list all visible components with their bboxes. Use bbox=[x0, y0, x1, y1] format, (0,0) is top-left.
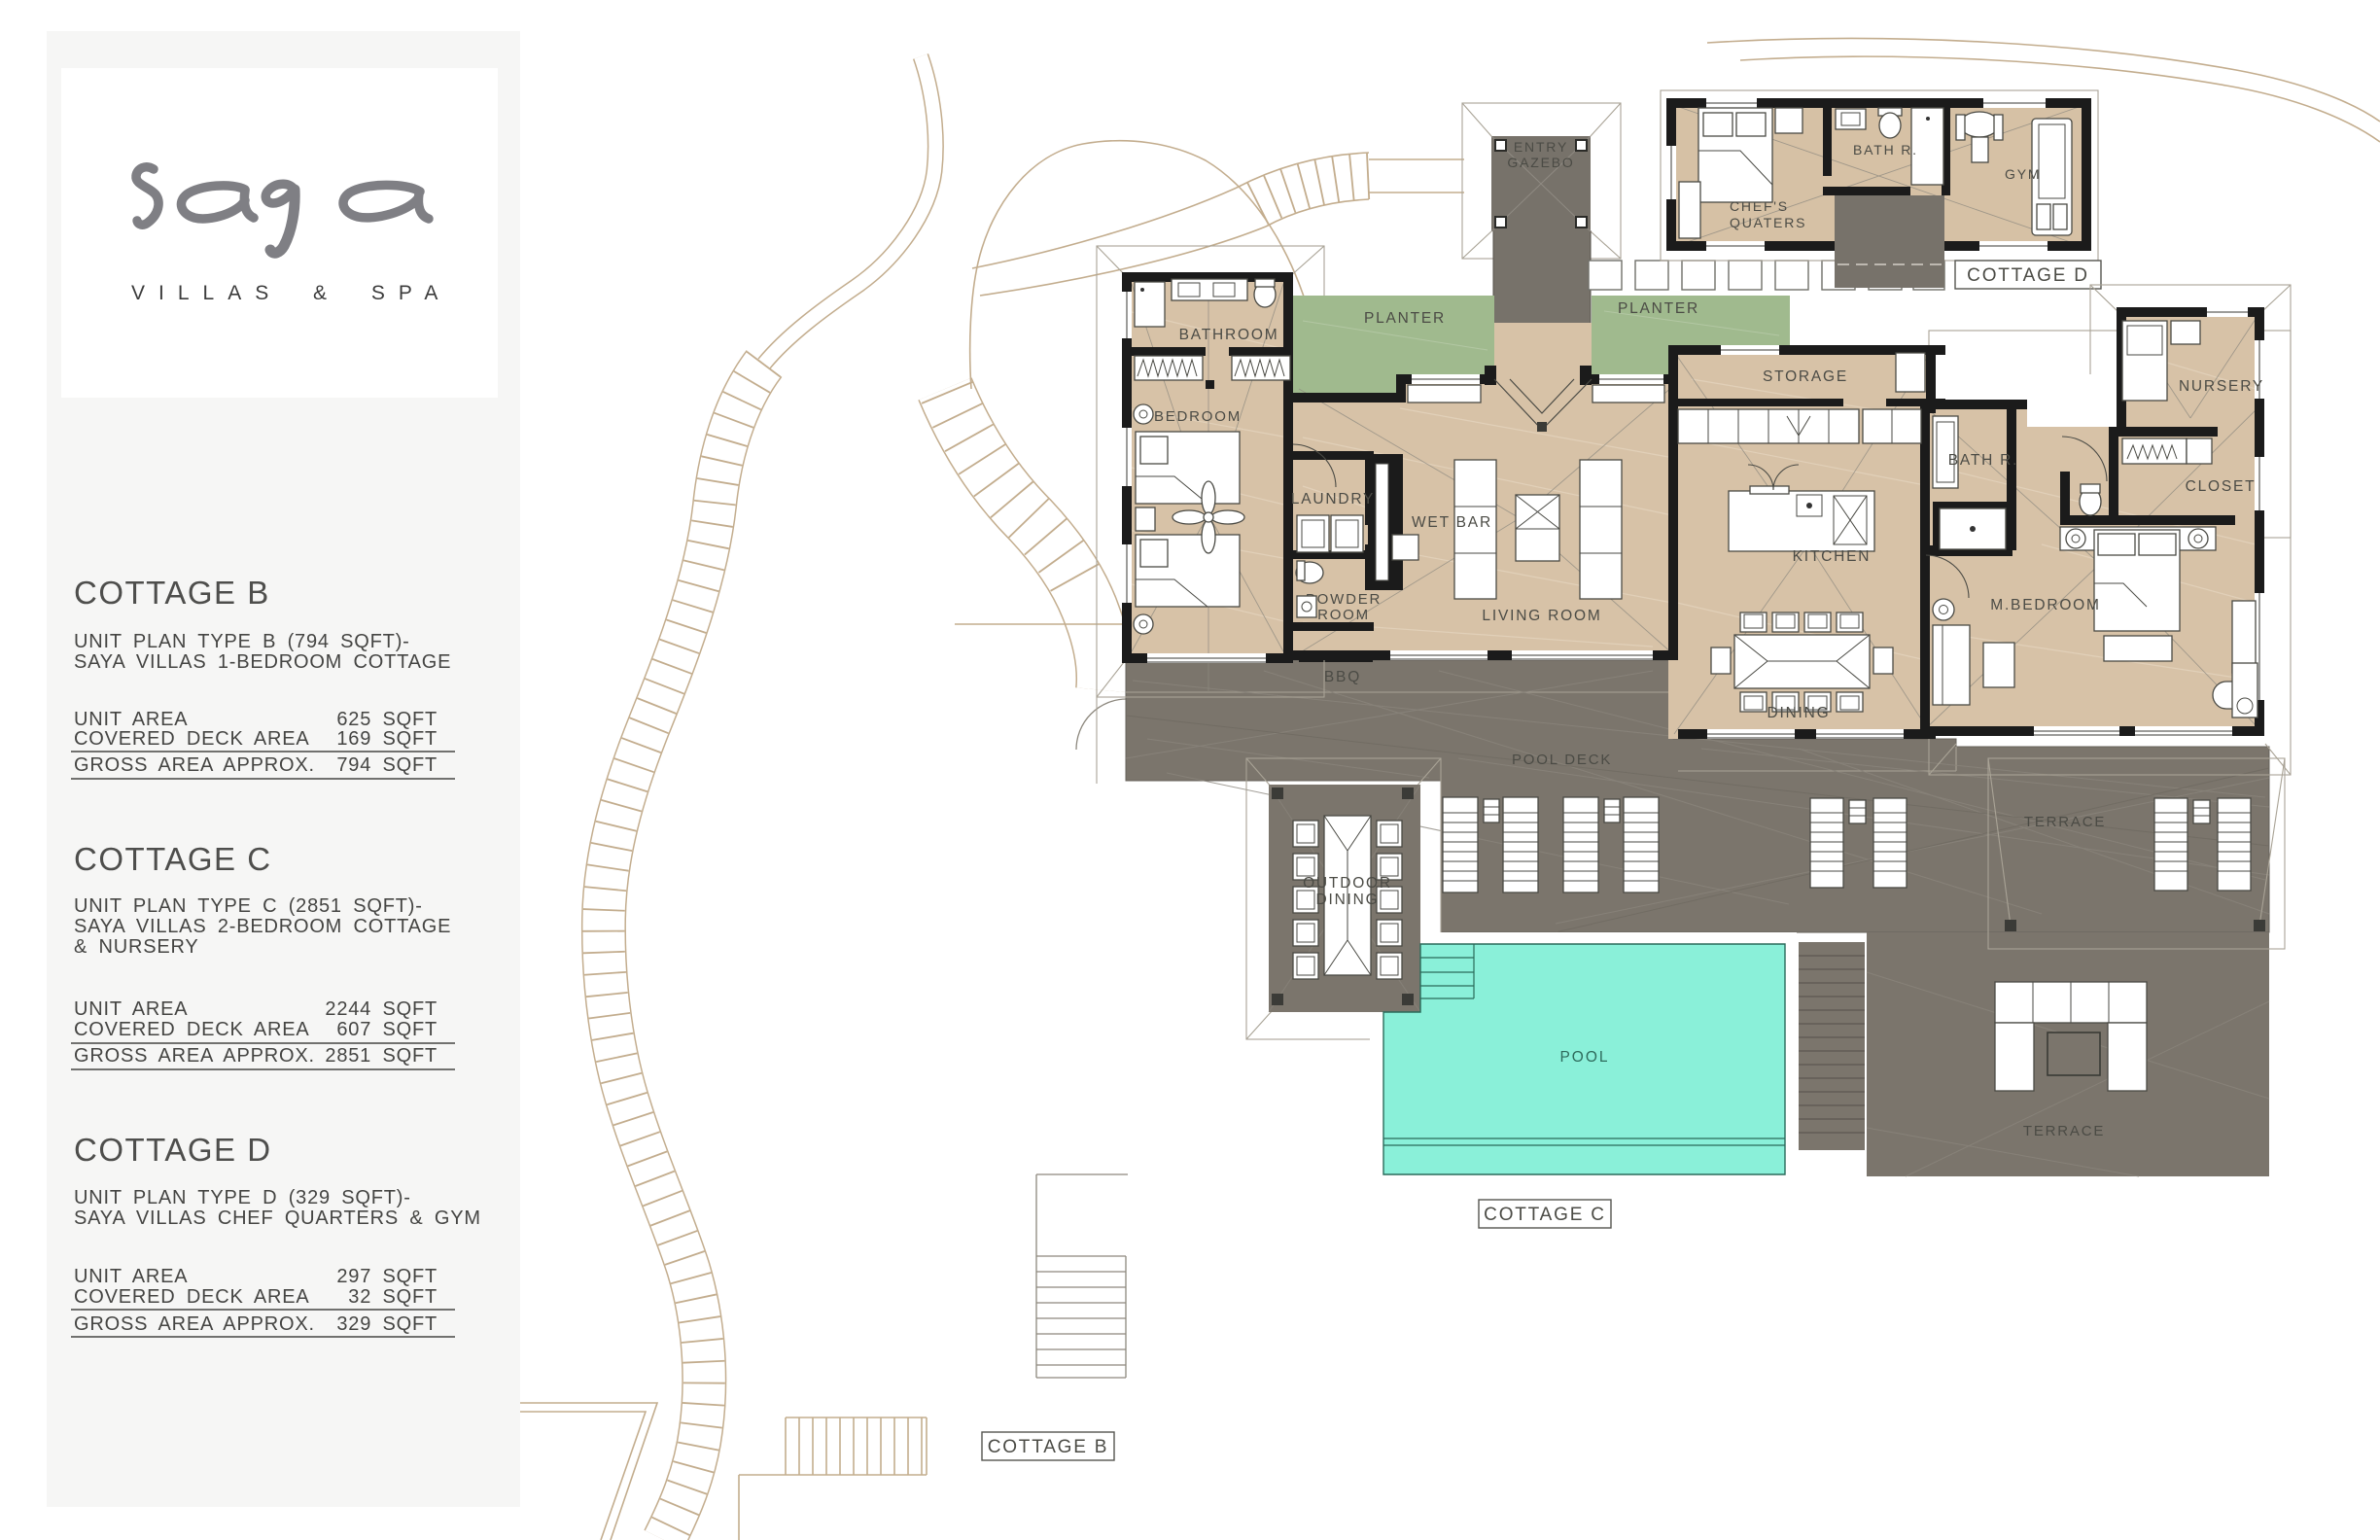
svg-text:UNIT AREA: UNIT AREA bbox=[74, 709, 188, 730]
svg-text:SAYA VILLAS CHEF QUARTERS & GY: SAYA VILLAS CHEF QUARTERS & GYM bbox=[74, 1207, 481, 1229]
svg-text:ROOM: ROOM bbox=[1317, 607, 1370, 623]
svg-text:SAYA VILLAS 2-BEDROOM COTTAGE: SAYA VILLAS 2-BEDROOM COTTAGE bbox=[74, 916, 451, 937]
svg-text:SAYA VILLAS 1-BEDROOM COTTAGE: SAYA VILLAS 1-BEDROOM COTTAGE bbox=[74, 651, 451, 673]
svg-text:UNIT PLAN TYPE B (794 SQFT)-: UNIT PLAN TYPE B (794 SQFT)- bbox=[74, 631, 410, 652]
svg-text:NURSERY: NURSERY bbox=[2179, 378, 2264, 395]
svg-text:32 SQFT: 32 SQFT bbox=[348, 1286, 437, 1308]
svg-text:POOL DECK: POOL DECK bbox=[1512, 752, 1612, 768]
svg-text:794 SQFT: 794 SQFT bbox=[336, 754, 437, 776]
svg-text:PLANTER: PLANTER bbox=[1618, 300, 1699, 317]
svg-text:M.BEDROOM: M.BEDROOM bbox=[1990, 597, 2101, 613]
svg-text:297 SQFT: 297 SQFT bbox=[336, 1266, 437, 1287]
svg-text:LAUNDRY: LAUNDRY bbox=[1291, 491, 1375, 507]
svg-text:GROSS AREA APPROX.: GROSS AREA APPROX. bbox=[74, 1045, 315, 1067]
svg-text:625 SQFT: 625 SQFT bbox=[336, 709, 437, 730]
svg-text:GROSS AREA APPROX.: GROSS AREA APPROX. bbox=[74, 1313, 315, 1335]
svg-text:COTTAGE D: COTTAGE D bbox=[1967, 265, 2089, 286]
svg-text:COTTAGE D: COTTAGE D bbox=[74, 1132, 272, 1168]
svg-text:COVERED DECK AREA: COVERED DECK AREA bbox=[74, 1019, 310, 1040]
svg-text:OUTDOOR: OUTDOOR bbox=[1303, 875, 1392, 892]
svg-text:COVERED DECK AREA: COVERED DECK AREA bbox=[74, 728, 310, 750]
svg-text:COTTAGE C: COTTAGE C bbox=[1484, 1205, 1606, 1225]
svg-text:UNIT AREA: UNIT AREA bbox=[74, 1266, 188, 1287]
svg-text:GAZEBO: GAZEBO bbox=[1507, 155, 1574, 170]
svg-text:BATHROOM: BATHROOM bbox=[1179, 327, 1279, 343]
svg-text:PLANTER: PLANTER bbox=[1364, 310, 1446, 327]
svg-text:UNIT PLAN TYPE C (2851 SQFT)-: UNIT PLAN TYPE C (2851 SQFT)- bbox=[74, 895, 423, 917]
svg-text:2244 SQFT: 2244 SQFT bbox=[325, 998, 437, 1020]
svg-text:WET BAR: WET BAR bbox=[1412, 514, 1492, 531]
svg-text:COTTAGE B: COTTAGE B bbox=[74, 575, 270, 611]
svg-text:GROSS AREA APPROX.: GROSS AREA APPROX. bbox=[74, 754, 315, 776]
svg-text:STORAGE: STORAGE bbox=[1763, 368, 1848, 385]
svg-text:COTTAGE C: COTTAGE C bbox=[74, 841, 272, 877]
svg-text:TERRACE: TERRACE bbox=[2024, 814, 2106, 830]
svg-text:BBQ: BBQ bbox=[1324, 669, 1361, 685]
svg-text:POOL: POOL bbox=[1559, 1049, 1609, 1066]
svg-text:169 SQFT: 169 SQFT bbox=[336, 728, 437, 750]
svg-text:BATH R.: BATH R. bbox=[1948, 452, 2019, 469]
svg-text:DINING: DINING bbox=[1315, 892, 1379, 908]
svg-text:UNIT AREA: UNIT AREA bbox=[74, 998, 188, 1020]
svg-text:QUATERS: QUATERS bbox=[1730, 215, 1806, 230]
svg-text:GYM: GYM bbox=[2005, 166, 2041, 182]
svg-text:& NURSERY: & NURSERY bbox=[74, 936, 199, 958]
svg-text:VILLAS & SPA: VILLAS & SPA bbox=[131, 282, 451, 304]
svg-text:UNIT PLAN TYPE D (329 SQFT)-: UNIT PLAN TYPE D (329 SQFT)- bbox=[74, 1187, 411, 1208]
svg-text:ENTRY: ENTRY bbox=[1514, 139, 1568, 155]
svg-text:DINING: DINING bbox=[1767, 705, 1830, 721]
svg-text:COVERED DECK AREA: COVERED DECK AREA bbox=[74, 1286, 310, 1308]
svg-text:BEDROOM: BEDROOM bbox=[1154, 408, 1242, 425]
svg-text:CHEF'S: CHEF'S bbox=[1730, 198, 1789, 214]
svg-text:TERRACE: TERRACE bbox=[2023, 1123, 2105, 1139]
svg-text:CLOSET: CLOSET bbox=[2186, 478, 2257, 495]
svg-text:BATH R.: BATH R. bbox=[1853, 142, 1918, 157]
svg-text:607 SQFT: 607 SQFT bbox=[336, 1019, 437, 1040]
svg-text:COTTAGE B: COTTAGE B bbox=[988, 1437, 1109, 1457]
svg-text:LIVING ROOM: LIVING ROOM bbox=[1482, 608, 1601, 624]
svg-text:2851 SQFT: 2851 SQFT bbox=[325, 1045, 437, 1067]
svg-text:329 SQFT: 329 SQFT bbox=[336, 1313, 437, 1335]
svg-text:KITCHEN: KITCHEN bbox=[1793, 548, 1872, 565]
